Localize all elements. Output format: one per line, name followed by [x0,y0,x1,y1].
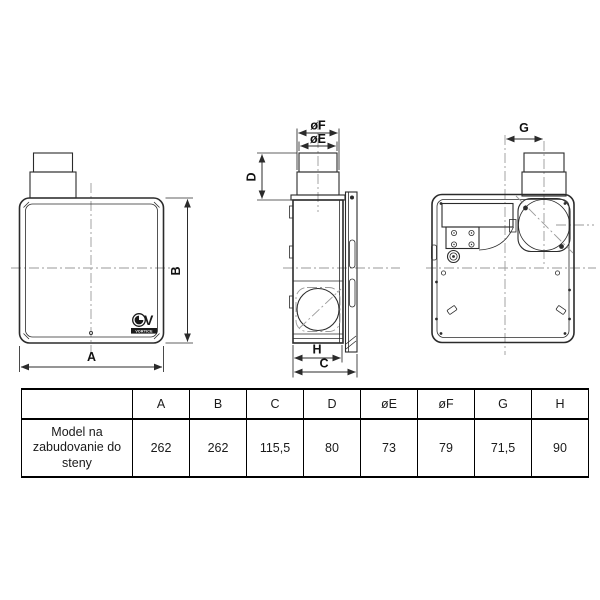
side-mounting-flange [346,192,358,352]
front-duct-base [30,172,76,198]
dimension-a-label: A [87,350,96,364]
rear-housing-inner [437,200,569,338]
value-h: 90 [532,419,589,477]
flange-screw [350,196,354,200]
rear-corner-screws [440,202,567,335]
rear-housing-outline [432,195,574,343]
front-corner-chamfers [24,202,160,339]
cable-grommet [448,251,460,263]
rear-recess [442,204,513,228]
terminal-block [446,227,479,249]
table-row: Model na zabudovanie do steny 262 262 11… [22,419,589,477]
front-duct-top [34,153,73,172]
header-d: D [304,389,361,419]
dimension-c-label: C [319,357,328,371]
outlet-screw-1 [523,206,528,211]
rear-slot-left [447,305,457,314]
rear-slot-right [556,305,566,314]
outlet-screw-2 [559,244,564,249]
dimension-h-label: H [312,343,321,357]
value-of: 79 [418,419,475,477]
dimension-g-label: G [519,121,529,135]
header-c: C [247,389,304,419]
rear-view-drawing: G [426,121,596,355]
value-a: 262 [133,419,190,477]
value-c: 115,5 [247,419,304,477]
rear-hole-left [441,271,445,275]
dimension-d-label: D [245,172,259,181]
model-label: Model na zabudovanie do steny [22,419,133,477]
logo-fan-icon [135,316,144,325]
logo-wordmark: VORTICE [135,329,153,333]
datasheet-page: V VORTICE B A [0,0,600,600]
dimension-oe: øE [299,132,337,151]
header-h: H [532,389,589,419]
header-empty [22,389,133,419]
dimension-b-label: B [169,266,183,275]
dimension-drawings: V VORTICE B A [0,0,600,386]
dimension-b: B [166,198,194,343]
value-g: 71,5 [475,419,532,477]
header-of: øF [418,389,475,419]
header-a: A [133,389,190,419]
dimensions-table: A B C D øE øF G H Model na zabudovanie d… [21,388,589,478]
dimension-oe-label: øE [310,132,326,146]
dimension-of-label: øF [310,119,326,133]
dimension-g: G [507,121,543,139]
dimension-d: D [245,153,298,200]
header-oe: øE [361,389,418,419]
front-view-drawing: V VORTICE B A [11,153,193,372]
table-header-row: A B C D øE øF G H [22,389,589,419]
logo-v-glyph: V [144,312,154,328]
header-g: G [475,389,532,419]
value-d: 80 [304,419,361,477]
value-b: 262 [190,419,247,477]
vortice-logo: V VORTICE [131,312,157,334]
side-view-drawing: øF øE D H [245,119,401,378]
rear-edge-marks [435,281,571,321]
scroll-curve [479,227,514,250]
value-oe: 73 [361,419,418,477]
header-b: B [190,389,247,419]
rear-hole-right [555,271,559,275]
dimension-a: A [20,346,164,372]
